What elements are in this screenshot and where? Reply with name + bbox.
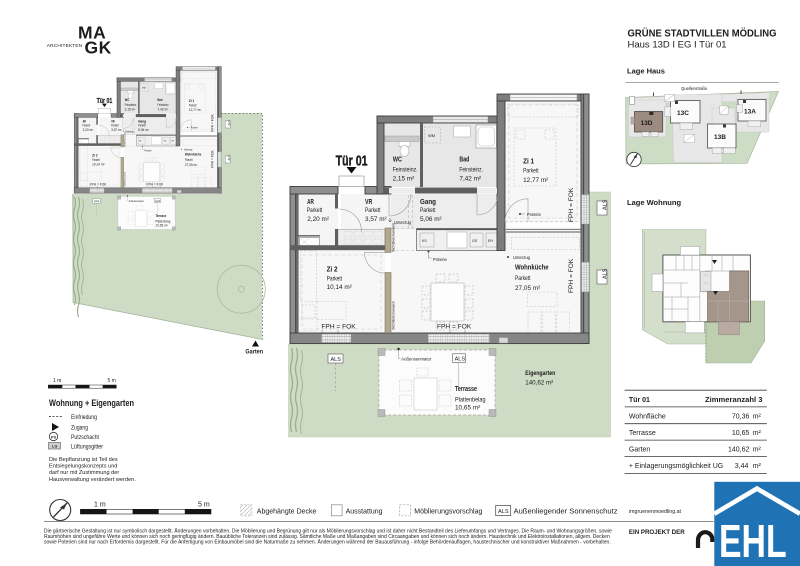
svg-text:13D: 13D (641, 120, 653, 127)
svg-text:EHL: EHL (719, 515, 787, 566)
svg-text:5 m: 5 m (198, 502, 210, 509)
svg-text:GK: GK (85, 37, 112, 57)
svg-text:Lüftungsgitter: Lüftungsgitter (71, 444, 103, 451)
svg-text:Abgehängte Decke: Abgehängte Decke (257, 509, 317, 516)
svg-text:m²: m² (753, 414, 762, 421)
svg-text:Putzschacht: Putzschacht (71, 434, 99, 441)
svg-text:Hausverwaltung verändert werde: Hausverwaltung verändert werden. (49, 477, 136, 483)
svg-text:LG: LG (52, 445, 57, 449)
svg-text:+ Einlagerungsmöglichkeit UG: + Einlagerungsmöglichkeit UG (629, 463, 723, 470)
svg-text:Zimmeranzahl 3: Zimmeranzahl 3 (705, 397, 763, 404)
svg-text:140,62 m²: 140,62 m² (525, 380, 553, 387)
svg-text:10,65: 10,65 (732, 430, 750, 437)
svg-text:Wohnfläche: Wohnfläche (629, 414, 666, 421)
svg-text:m²: m² (753, 430, 762, 437)
svg-text:70,36: 70,36 (732, 414, 750, 421)
svg-text:m²: m² (753, 463, 762, 470)
svg-text:Ausstattung: Ausstattung (346, 509, 383, 516)
svg-text:13A: 13A (744, 109, 756, 116)
svg-text:EIN PROJEKT DER: EIN PROJEKT DER (629, 529, 685, 536)
svg-text:Eigengarten: Eigengarten (525, 370, 555, 377)
svg-text:PS: PS (51, 436, 57, 440)
svg-text:imgruenenmoedling.at: imgruenenmoedling.at (629, 509, 682, 515)
svg-text:darf nur mit Zustimmung der: darf nur mit Zustimmung der (49, 470, 119, 476)
svg-text:Lage Haus: Lage Haus (627, 67, 665, 76)
svg-text:Einfriedung: Einfriedung (71, 414, 97, 421)
svg-text:m²: m² (753, 447, 762, 454)
svg-text:1 m: 1 m (53, 378, 61, 384)
svg-text:3,44: 3,44 (735, 463, 749, 470)
svg-text:GRÜNE STADTVILLEN MÖDLING: GRÜNE STADTVILLEN MÖDLING (628, 27, 777, 40)
svg-text:Quellenstraße: Quellenstraße (681, 86, 708, 91)
svg-text:5 m: 5 m (108, 378, 116, 384)
svg-text:Haus 13D I EG I Tür 01: Haus 13D I EG I Tür 01 (628, 40, 727, 51)
svg-text:ALS: ALS (498, 509, 509, 515)
svg-text:Wohnung + Eigengarten: Wohnung + Eigengarten (49, 398, 134, 408)
svg-text:sowie Poterien sind nur nach E: sowie Poterien sind nur nach Erfordernis… (44, 539, 611, 546)
svg-text:Garten: Garten (629, 447, 651, 454)
svg-text:Möblierungsvorschlag: Möblierungsvorschlag (414, 509, 482, 516)
svg-text:Außenliegender Sonnenschutz: Außenliegender Sonnenschutz (514, 509, 619, 516)
svg-text:13C: 13C (677, 110, 689, 117)
svg-text:1 m: 1 m (94, 502, 106, 509)
svg-text:Die Bepflanzung ist Teil des: Die Bepflanzung ist Teil des (49, 457, 118, 463)
svg-text:ARCHITEKTEN: ARCHITEKTEN (47, 43, 83, 49)
svg-text:Garten: Garten (245, 349, 263, 356)
svg-text:Lage Wohnung: Lage Wohnung (627, 198, 681, 207)
svg-text:Terrasse: Terrasse (629, 430, 656, 437)
svg-text:140,62: 140,62 (728, 447, 750, 454)
svg-text:Tür 01: Tür 01 (629, 397, 650, 404)
svg-text:Zugang: Zugang (71, 425, 88, 432)
svg-text:Entsiegelungskonzepts und: Entsiegelungskonzepts und (49, 464, 117, 470)
svg-text:13B: 13B (714, 134, 726, 141)
